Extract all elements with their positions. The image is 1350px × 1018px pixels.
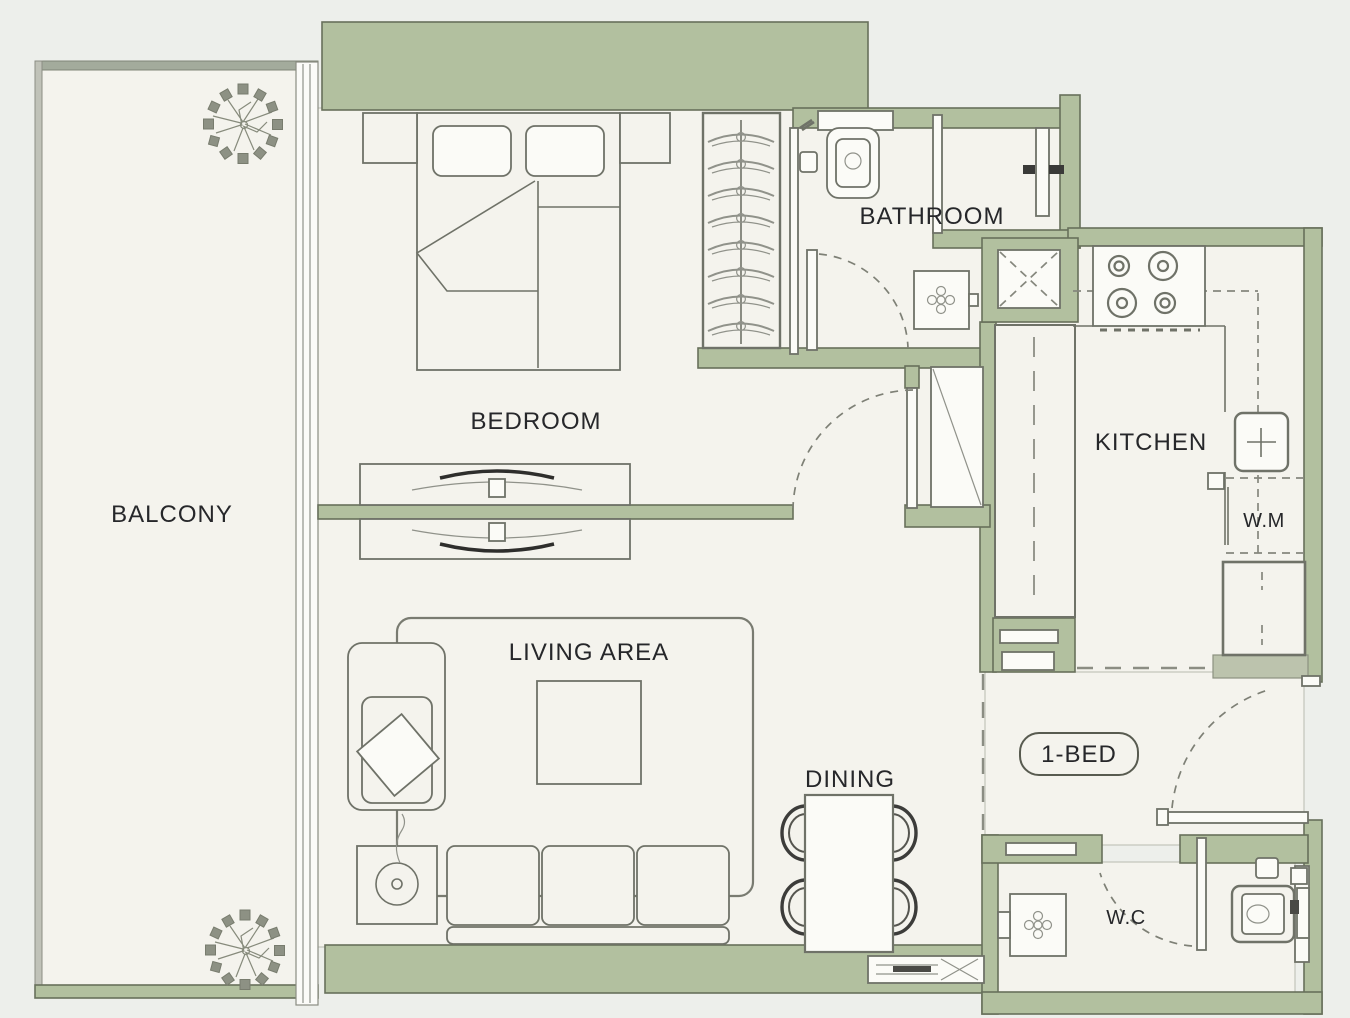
dining-label: DINING — [805, 766, 895, 793]
kitchen-wall-vent — [993, 618, 1075, 672]
nightstand-left — [363, 113, 417, 163]
bathroom-lower-wall — [698, 348, 988, 368]
kitchen-label: KITCHEN — [1095, 429, 1207, 456]
balcony-top-wall — [35, 61, 318, 70]
hall-closet — [931, 367, 983, 507]
wc-top-left-wall — [982, 835, 1102, 863]
bathroom-label: BATHROOM — [860, 203, 1005, 230]
floor-plan-drawing: BALCONY BEDROOM BATHROOM KITCHEN LIVING … — [0, 0, 1350, 1018]
bedroom-door-stub — [905, 366, 919, 388]
shaft — [982, 238, 1078, 322]
living-area-label: LIVING AREA — [509, 639, 669, 666]
balcony-bottom-wall — [35, 985, 318, 998]
unit-type-label: 1-BED — [1041, 741, 1117, 768]
nightstand-right — [620, 113, 670, 163]
bedroom-label: BEDROOM — [470, 408, 601, 435]
balcony-label: BALCONY — [111, 501, 233, 528]
stove — [1093, 246, 1205, 330]
top-wall-band — [322, 22, 868, 110]
tv-partition-wall — [318, 505, 793, 519]
bed — [417, 113, 620, 370]
unit-type-badge: 1-BED — [1020, 733, 1138, 775]
floor-plan: BALCONY BEDROOM BATHROOM KITCHEN LIVING … — [0, 0, 1350, 1018]
sofa — [447, 846, 729, 944]
wc-label: W.C — [1106, 907, 1146, 929]
armchair — [348, 643, 445, 810]
tv-unit-bedroom — [360, 464, 630, 505]
bathroom-sink — [914, 271, 978, 329]
washing-machine-label: W.M — [1243, 510, 1285, 532]
wardrobe — [703, 113, 780, 348]
tv-unit-living — [360, 519, 630, 559]
wall-vent — [868, 956, 984, 983]
balcony-floor — [41, 68, 297, 990]
balcony-left-wall — [35, 61, 42, 990]
wc-bottom-wall — [982, 992, 1322, 1014]
bathroom-left-wall — [790, 128, 798, 354]
right-outer-wall-upper — [1304, 228, 1322, 682]
kitchen-top-wall — [1068, 228, 1322, 246]
coffee-table — [537, 681, 641, 784]
entry-wall-stub — [1213, 655, 1308, 678]
balcony-window-wall — [296, 62, 318, 1005]
kitchen-tall-cabinet — [995, 325, 1075, 617]
